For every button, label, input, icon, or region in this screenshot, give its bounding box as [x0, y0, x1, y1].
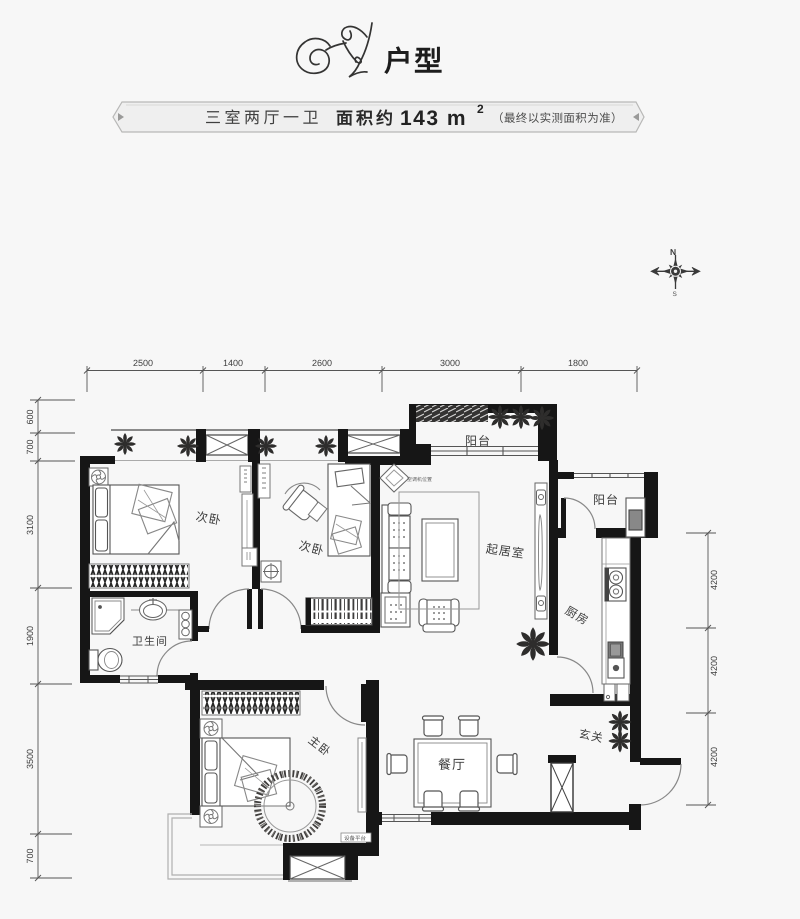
svg-text:4200: 4200 [709, 656, 719, 676]
svg-text:户型: 户型 [384, 46, 444, 78]
svg-text:4200: 4200 [709, 747, 719, 767]
svg-text:2600: 2600 [312, 358, 332, 368]
svg-text:700: 700 [25, 848, 35, 863]
svg-text:阳台: 阳台 [593, 493, 619, 507]
svg-text:餐厅: 餐厅 [438, 757, 466, 772]
svg-text:三室两厅一卫: 三室两厅一卫 [205, 109, 322, 127]
svg-text:3000: 3000 [440, 358, 460, 368]
svg-text:700: 700 [25, 439, 35, 454]
svg-text:3500: 3500 [25, 749, 35, 769]
svg-text:3100: 3100 [25, 515, 35, 535]
svg-text:空调机位置: 空调机位置 [407, 476, 432, 483]
svg-text:卫生间: 卫生间 [132, 635, 168, 648]
svg-text:1800: 1800 [568, 358, 588, 368]
svg-text:S: S [673, 291, 678, 298]
svg-text:600: 600 [25, 409, 35, 424]
svg-text:2: 2 [477, 102, 484, 116]
svg-text:1400: 1400 [223, 358, 243, 368]
svg-text:阳台: 阳台 [465, 434, 491, 448]
svg-text:面积约: 面积约 [336, 109, 396, 128]
svg-text:2500: 2500 [133, 358, 153, 368]
svg-text:1900: 1900 [25, 626, 35, 646]
svg-text:（最终以实测面积为准）: （最终以实测面积为准） [492, 112, 623, 125]
svg-text:4200: 4200 [709, 570, 719, 590]
svg-text:设备平台: 设备平台 [344, 835, 367, 842]
svg-text:143 m: 143 m [400, 107, 467, 130]
